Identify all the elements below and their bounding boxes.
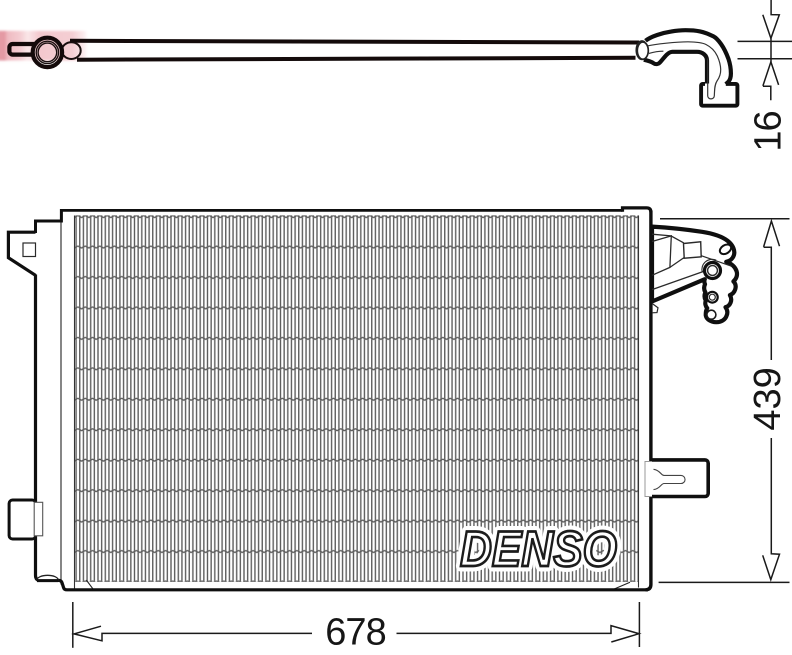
svg-text:439: 439	[747, 367, 789, 430]
svg-text:678: 678	[325, 611, 385, 653]
svg-text:DENSO: DENSO	[460, 521, 617, 577]
svg-text:16: 16	[747, 111, 789, 151]
